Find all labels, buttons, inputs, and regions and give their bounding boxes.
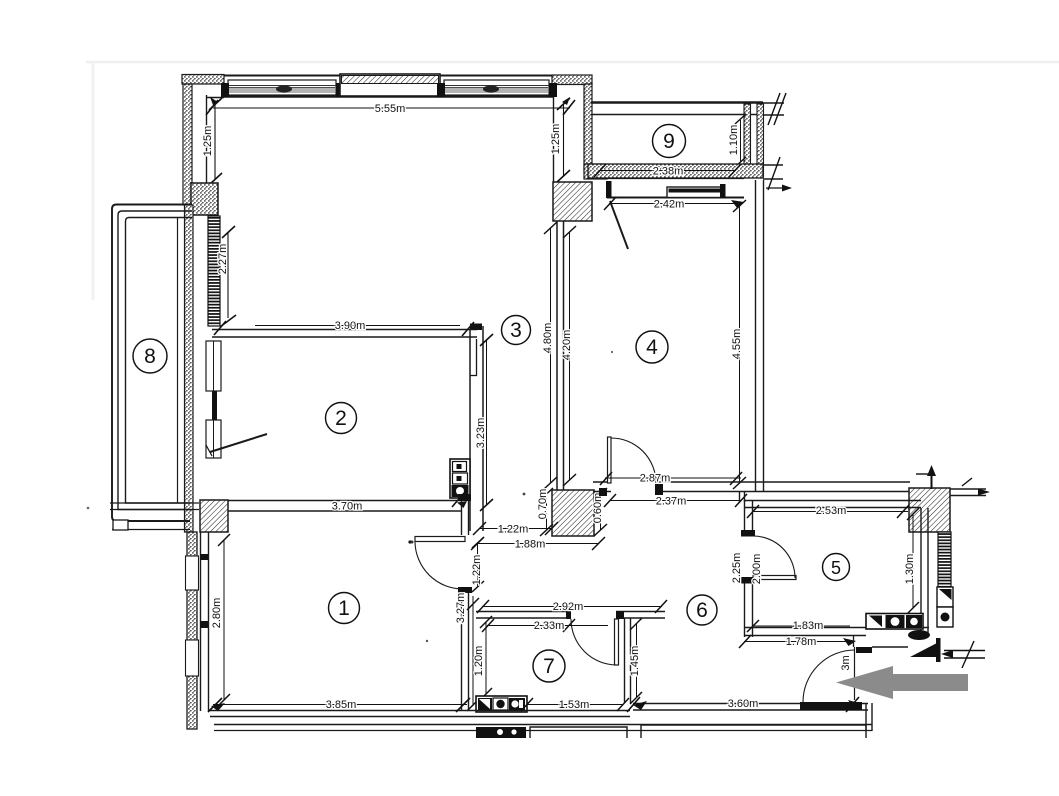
svg-text:2.00m: 2.00m <box>751 554 763 585</box>
svg-text:7: 7 <box>543 655 555 678</box>
svg-text:2.80m: 2.80m <box>211 598 223 629</box>
svg-text:1.22m: 1.22m <box>471 555 483 586</box>
svg-text:2.25m: 2.25m <box>731 553 743 584</box>
svg-text:2: 2 <box>335 407 347 430</box>
svg-text:1.83m: 1.83m <box>793 620 824 632</box>
svg-text:1.30m: 1.30m <box>904 554 916 585</box>
svg-text:1.10m: 1.10m <box>728 125 740 156</box>
svg-text:6: 6 <box>696 599 708 622</box>
svg-text:1.22m: 1.22m <box>498 524 529 536</box>
svg-text:1.78m: 1.78m <box>786 636 817 648</box>
svg-text:3.70m: 3.70m <box>332 501 363 513</box>
svg-text:2.38m: 2.38m <box>653 166 684 178</box>
svg-text:2.33m: 2.33m <box>534 620 565 632</box>
svg-text:5.55m: 5.55m <box>375 103 406 115</box>
svg-text:2.27m: 2.27m <box>217 244 229 275</box>
svg-text:3m: 3m <box>840 655 852 670</box>
svg-text:1.20m: 1.20m <box>473 646 485 677</box>
svg-text:2.53m: 2.53m <box>816 505 847 517</box>
svg-text:3.23m: 3.23m <box>475 418 487 449</box>
svg-text:2.92m: 2.92m <box>553 601 584 613</box>
svg-text:1.25m: 1.25m <box>202 126 214 157</box>
svg-text:4.80m: 4.80m <box>542 323 554 354</box>
svg-text:5: 5 <box>831 558 841 578</box>
svg-text:3.60m: 3.60m <box>728 698 759 710</box>
svg-text:1.53m: 1.53m <box>559 699 590 711</box>
svg-text:0.60m: 0.60m <box>592 493 604 524</box>
svg-text:0.70m: 0.70m <box>537 489 549 520</box>
svg-text:1: 1 <box>338 597 350 620</box>
svg-text:1.88m: 1.88m <box>515 539 546 551</box>
svg-text:2.42m: 2.42m <box>654 199 685 211</box>
svg-text:4: 4 <box>646 336 658 359</box>
svg-text:4.55m: 4.55m <box>731 329 743 360</box>
svg-text:3.85m: 3.85m <box>326 699 357 711</box>
svg-text:1.45m: 1.45m <box>629 646 641 677</box>
svg-text:2.87m: 2.87m <box>640 473 671 485</box>
svg-text:2.37m: 2.37m <box>656 496 687 508</box>
svg-text:3.27m: 3.27m <box>455 593 467 624</box>
svg-text:3.90m: 3.90m <box>335 320 366 332</box>
svg-text:1.25m: 1.25m <box>550 124 562 155</box>
svg-text:8: 8 <box>144 345 156 368</box>
svg-text:3: 3 <box>510 319 522 342</box>
svg-text:9: 9 <box>663 130 675 153</box>
svg-text:4.20m: 4.20m <box>561 330 573 361</box>
